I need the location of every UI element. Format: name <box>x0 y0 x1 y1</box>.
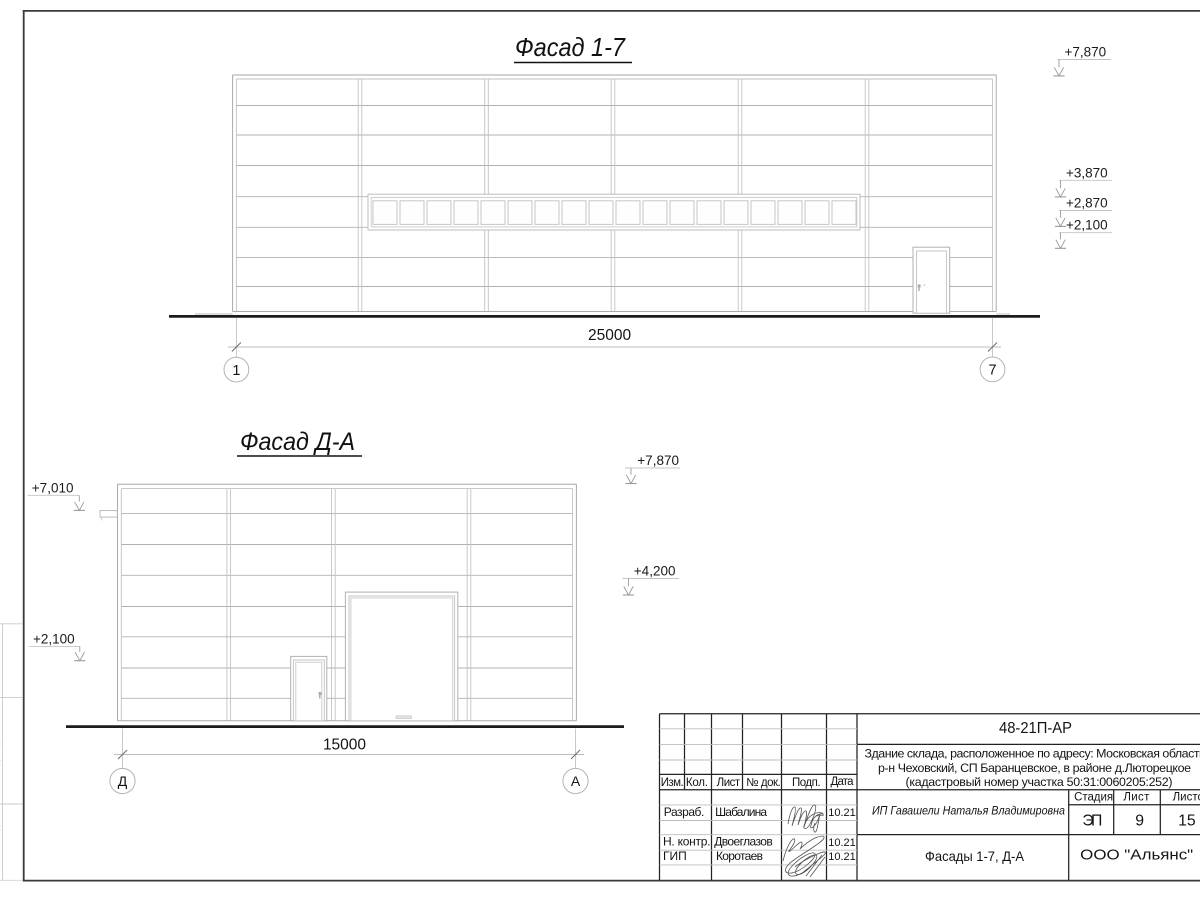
svg-text:Инв. № подл.: Инв. № подл. <box>0 820 1 867</box>
svg-text:Н. контр.: Н. контр. <box>663 835 711 849</box>
svg-text:Разраб.: Разраб. <box>664 805 705 819</box>
svg-text:+7,010: +7,010 <box>32 480 74 495</box>
svg-text:Коротаев: Коротаев <box>716 849 763 863</box>
svg-text:Шабалина: Шабалина <box>715 805 767 819</box>
svg-text:А: А <box>571 773 581 789</box>
svg-text:Здание склада, расположенное п: Здание склада, расположенное по адресу: … <box>865 747 1200 761</box>
svg-text:ИП Гавашели Наталья Владимиров: ИП Гавашели Наталья Владимировна <box>872 803 1065 817</box>
svg-text:10.21: 10.21 <box>828 837 856 849</box>
svg-text:ООО "Альянс": ООО "Альянс" <box>1080 846 1193 863</box>
svg-text:1: 1 <box>232 363 240 379</box>
svg-text:15000: 15000 <box>323 737 366 754</box>
svg-text:+2,870: +2,870 <box>1066 196 1108 211</box>
svg-text:ЭП: ЭП <box>1082 813 1102 830</box>
svg-text:(кадастровый номер участка 50:: (кадастровый номер участка 50:31:0060205… <box>906 775 1173 789</box>
svg-text:Фасад 1-7: Фасад 1-7 <box>515 32 626 62</box>
svg-text:+3,870: +3,870 <box>1066 165 1108 180</box>
svg-text:+2,100: +2,100 <box>33 631 75 646</box>
svg-text:Дата: Дата <box>831 776 855 788</box>
svg-text:Взам. инв. №: Взам. инв. № <box>0 638 1 684</box>
svg-text:10.21: 10.21 <box>828 851 856 863</box>
svg-text:Подп. и дата: Подп. и дата <box>0 729 1 774</box>
svg-text:Фасад Д-А: Фасад Д-А <box>240 428 355 456</box>
svg-text:Лист: Лист <box>717 777 741 789</box>
svg-text:р-н Чеховский, СП Баранцевское: р-н Чеховский, СП Баранцевское, в районе… <box>878 761 1191 775</box>
svg-text:Стадия: Стадия <box>1074 792 1113 804</box>
svg-text:15: 15 <box>1178 813 1196 830</box>
svg-text:10.21: 10.21 <box>828 807 856 819</box>
svg-text:Изм.: Изм. <box>661 777 684 789</box>
svg-text:Лист: Лист <box>1123 792 1150 804</box>
svg-text:Двоеглазов: Двоеглазов <box>714 835 773 849</box>
svg-text:№ док.: № док. <box>746 777 781 789</box>
svg-text:7: 7 <box>988 363 996 379</box>
svg-text:9: 9 <box>1135 813 1144 830</box>
svg-text:48-21П-АР: 48-21П-АР <box>999 720 1072 737</box>
svg-text:+7,870: +7,870 <box>1065 45 1107 60</box>
svg-text:Фасады 1-7, Д-А: Фасады 1-7, Д-А <box>925 848 1025 864</box>
svg-text:Д: Д <box>118 773 128 789</box>
svg-text:ГИП: ГИП <box>663 849 687 863</box>
svg-text:Листов: Листов <box>1173 792 1200 804</box>
svg-text:25000: 25000 <box>588 327 631 344</box>
svg-text:+7,870: +7,870 <box>637 453 679 468</box>
svg-text:+4,200: +4,200 <box>634 564 676 579</box>
svg-text:Подп.: Подп. <box>792 777 821 789</box>
svg-text:+2,100: +2,100 <box>1066 218 1108 233</box>
svg-text:Кол.: Кол. <box>686 777 708 789</box>
